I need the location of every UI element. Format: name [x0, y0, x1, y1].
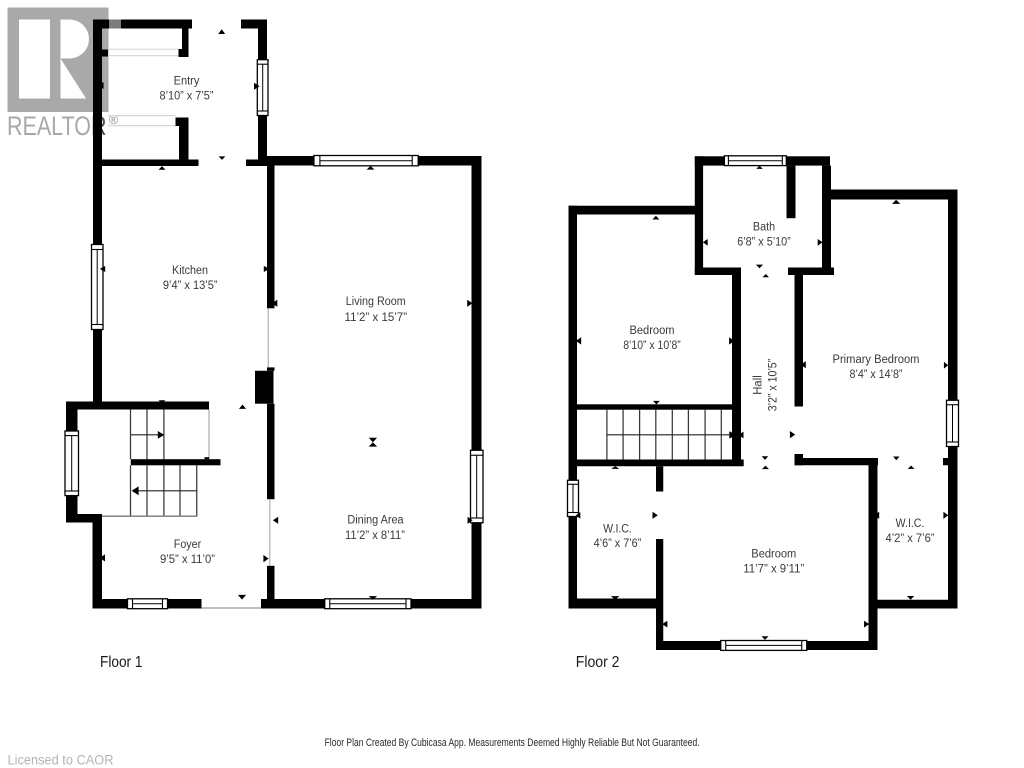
svg-text:8’10” x 10’8”: 8’10” x 10’8”: [623, 340, 681, 352]
svg-text:Kitchen: Kitchen: [172, 265, 208, 277]
svg-text:9’4” x 13’5”: 9’4” x 13’5”: [163, 280, 218, 292]
svg-text:Foyer: Foyer: [174, 539, 202, 551]
svg-text:6’8” x 5’10”: 6’8” x 5’10”: [737, 237, 791, 249]
svg-text:Hall: Hall: [753, 375, 765, 395]
svg-text:4’2” x 7’6”: 4’2” x 7’6”: [886, 533, 935, 545]
svg-text:Bedroom: Bedroom: [630, 325, 675, 337]
svg-text:W.I.C.: W.I.C.: [603, 524, 632, 536]
svg-text:9’5” x 11’0”: 9’5” x 11’0”: [160, 554, 215, 566]
svg-text:8’10” x 7’5”: 8’10” x 7’5”: [160, 91, 214, 103]
svg-text:Dining Area: Dining Area: [347, 515, 404, 527]
svg-text:Bath: Bath: [753, 221, 775, 233]
svg-text:11’2” x 15’7”: 11’2” x 15’7”: [345, 312, 408, 324]
svg-text:Licensed to CAOR: Licensed to CAOR: [8, 753, 114, 768]
svg-text:11’2” x 8’11”: 11’2” x 8’11”: [345, 530, 405, 542]
svg-text:Entry: Entry: [174, 75, 200, 87]
svg-text:8’4” x 14’8”: 8’4” x 14’8”: [850, 369, 903, 381]
svg-text:4’6” x 7’6”: 4’6” x 7’6”: [594, 538, 642, 550]
svg-text:REALTOR: REALTOR: [7, 111, 107, 141]
svg-text:11’7” x 9’11”: 11’7” x 9’11”: [743, 563, 804, 575]
svg-text:Floor 1: Floor 1: [100, 654, 143, 671]
svg-text:Floor 2: Floor 2: [576, 654, 620, 671]
svg-text:Bedroom: Bedroom: [751, 548, 796, 560]
svg-text:3’2” x 10’5”: 3’2” x 10’5”: [768, 359, 780, 412]
svg-text:W.I.C.: W.I.C.: [896, 518, 925, 530]
svg-text:Floor Plan Created By Cubicasa: Floor Plan Created By Cubicasa App. Meas…: [325, 737, 700, 749]
svg-text:Primary Bedroom: Primary Bedroom: [833, 354, 920, 366]
svg-text:Living Room: Living Room: [346, 296, 406, 308]
